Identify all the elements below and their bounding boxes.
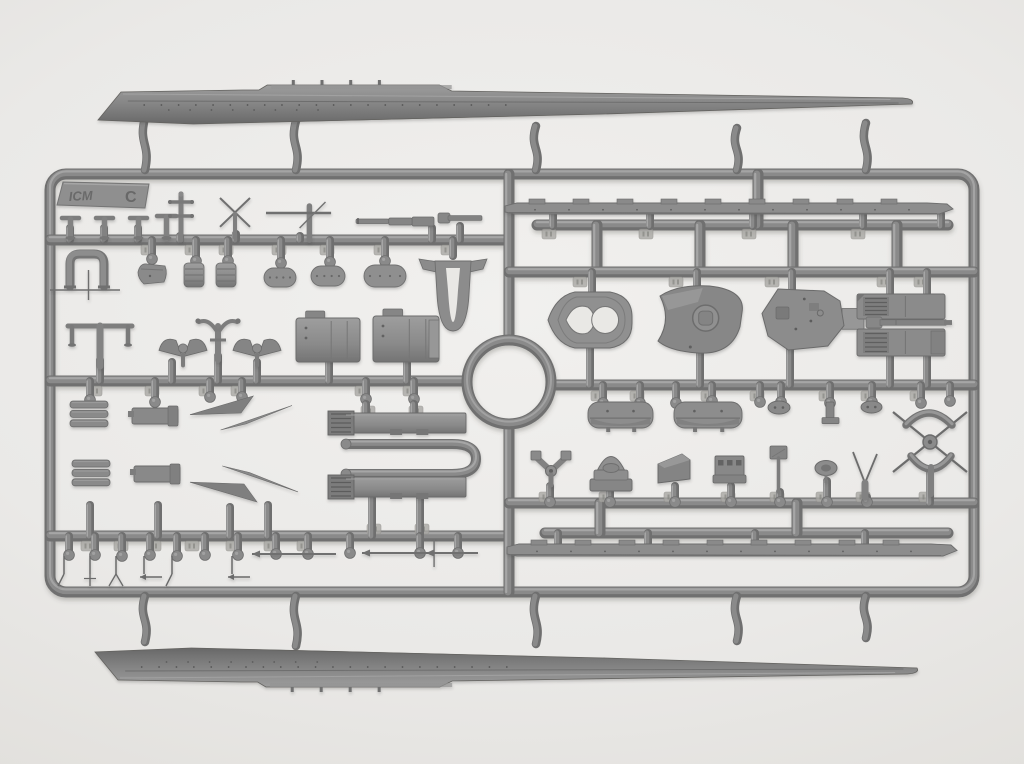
sprue-gate	[265, 505, 268, 536]
deckhouse-side	[328, 411, 466, 435]
sprue-gate	[550, 214, 553, 226]
part-number-tab	[542, 229, 556, 239]
sprue-gate	[726, 486, 737, 507]
deck-strip	[507, 540, 957, 556]
grating-stack	[72, 460, 110, 486]
sprue-gate	[200, 536, 211, 560]
molding-ring	[467, 338, 551, 424]
sprue-gate	[415, 536, 426, 558]
oval-plate	[364, 265, 406, 287]
sprue-gate	[887, 272, 890, 296]
oval-plate	[311, 266, 345, 286]
eye-fitting	[815, 461, 837, 484]
winch-cylinder	[216, 263, 236, 287]
v-bracket	[531, 451, 571, 485]
x-mast	[220, 198, 250, 238]
flag-post	[770, 446, 787, 492]
runner	[790, 225, 793, 272]
sprue-gate	[223, 240, 234, 266]
sprue-gate	[924, 353, 927, 385]
bracket-fitting	[822, 402, 839, 424]
sprue-gate	[271, 536, 282, 559]
thin-yard-rod	[426, 550, 478, 557]
sprue-gate	[117, 536, 128, 561]
sprue-gate	[303, 536, 314, 559]
hull-sprue-gate	[142, 596, 147, 642]
runner	[509, 500, 974, 503]
sprue-gate	[647, 214, 650, 226]
hull-sprue-gate	[293, 121, 298, 170]
sprue-gate	[155, 505, 158, 536]
sprue-gate	[750, 214, 753, 226]
winged-anchor	[233, 339, 281, 365]
sprue-gate	[169, 362, 172, 381]
sprue-gate	[64, 536, 75, 560]
sprue-gate	[450, 240, 453, 256]
runner	[697, 225, 700, 272]
hull-half-bottom	[95, 648, 918, 692]
curved-tee	[906, 412, 952, 425]
sprue-gate	[697, 352, 700, 385]
sprue-gate	[916, 385, 927, 408]
sprue-gate	[90, 536, 101, 560]
pennant-spar	[190, 396, 292, 430]
mid-platform	[658, 286, 742, 353]
part-number-tab	[669, 277, 683, 287]
sprue-gate	[147, 240, 158, 264]
boat-davit-tee	[68, 326, 132, 366]
winged-anchor	[159, 339, 207, 365]
part-number-tab	[639, 229, 653, 239]
sprue-gate	[938, 214, 941, 226]
short-gun-barrel	[438, 213, 482, 223]
window-box	[713, 456, 746, 483]
hull-sprue-gate	[533, 596, 538, 644]
sprue-gate	[345, 536, 356, 558]
needle-spar	[58, 556, 64, 586]
sprue-gate	[755, 385, 766, 407]
sprue-gate	[887, 353, 890, 385]
runner	[506, 174, 509, 340]
louvered-block	[857, 294, 945, 319]
sprue-gate	[145, 536, 156, 560]
sprue-gate	[172, 536, 183, 561]
part-number-tab	[765, 277, 779, 287]
small-boat	[138, 264, 166, 284]
sprue-gate	[87, 505, 90, 536]
curved-tee	[911, 455, 951, 494]
hull-sprue-gate	[734, 128, 739, 170]
sprue-gate	[411, 404, 414, 414]
icm-logo-text: ICM	[68, 188, 94, 204]
sprue-gate	[417, 498, 420, 536]
sloped-box	[658, 454, 690, 483]
sprue-gate	[150, 381, 161, 407]
part-number-tab	[851, 229, 865, 239]
sprue-gate	[205, 381, 216, 402]
part-number-tab	[185, 541, 199, 551]
hull-half-top	[98, 80, 913, 124]
runner	[509, 269, 974, 272]
mast-crosstree	[168, 191, 194, 240]
ships-boat	[588, 402, 653, 432]
hull-sprue-gate	[533, 126, 538, 170]
deckhouse-block	[373, 309, 439, 362]
runner	[794, 503, 797, 533]
logo-tab: ICMC	[57, 182, 149, 208]
stepped-gun-barrel	[356, 217, 434, 226]
hull-sprue-gate	[293, 596, 298, 646]
sprue-gate	[363, 404, 366, 414]
sprue-photo: ICMC	[0, 0, 1024, 764]
sprue-gate	[587, 348, 590, 385]
hull-sprue-gate	[734, 596, 739, 641]
sprue-gate	[380, 240, 391, 266]
sprue-gate	[429, 228, 432, 240]
part-number-tab	[573, 277, 587, 287]
oval-plate	[264, 268, 296, 287]
model-kit-sprue: ICMC	[0, 0, 1024, 764]
flat-plate	[128, 406, 178, 426]
winch-cylinder	[184, 263, 204, 287]
runner	[594, 225, 597, 272]
horn-piece	[195, 318, 240, 360]
deckhouse-side	[328, 475, 466, 499]
sprue-gate	[670, 486, 681, 507]
sprue-gate	[325, 240, 336, 267]
flat-plate	[130, 464, 180, 484]
thin-yard-rod	[252, 551, 336, 558]
sprue-gate	[233, 536, 244, 560]
sprue-gate	[369, 498, 372, 536]
v-antenna	[853, 452, 877, 497]
sprue-gate	[945, 385, 956, 406]
grating-stack	[70, 401, 108, 427]
deck-strip	[505, 199, 953, 214]
sprue-gate	[453, 536, 464, 558]
sprue-gate	[589, 272, 592, 292]
sprue-gate	[545, 486, 556, 507]
turret-dome	[590, 457, 632, 492]
deckhouse-block	[296, 311, 360, 362]
sprue-gate	[297, 236, 300, 240]
sprue-frame	[50, 171, 974, 592]
sprue-gate	[191, 240, 202, 266]
sprue-gate	[860, 214, 863, 226]
fore-platform	[548, 292, 632, 348]
u-bracket	[64, 253, 110, 287]
mast-x-jig	[893, 412, 967, 472]
sprue-gate	[775, 492, 786, 507]
sprue-gate	[227, 507, 230, 536]
louvered-block	[857, 329, 945, 356]
aft-platform	[762, 289, 864, 350]
hull-sprue-gate	[863, 123, 868, 170]
thin-mast-cross	[50, 270, 120, 300]
ships-boat	[674, 402, 742, 432]
hull-sprue-gate	[142, 118, 147, 170]
pennant-spar	[190, 466, 298, 502]
part-number-tab	[742, 229, 756, 239]
hull-sprue-gate	[863, 596, 868, 638]
oval-fitting	[861, 401, 882, 413]
sprue-gate	[276, 240, 287, 268]
sprue-gate	[404, 360, 407, 381]
runner	[894, 225, 897, 272]
sprue-gate	[787, 348, 790, 385]
oval-fitting	[768, 401, 790, 414]
sprue-letter: C	[125, 189, 137, 206]
u-sub-runner	[341, 439, 476, 479]
needle-spar	[166, 556, 172, 586]
runner	[597, 503, 600, 533]
sprue-gate	[457, 226, 460, 240]
sprue-gate	[822, 481, 833, 507]
